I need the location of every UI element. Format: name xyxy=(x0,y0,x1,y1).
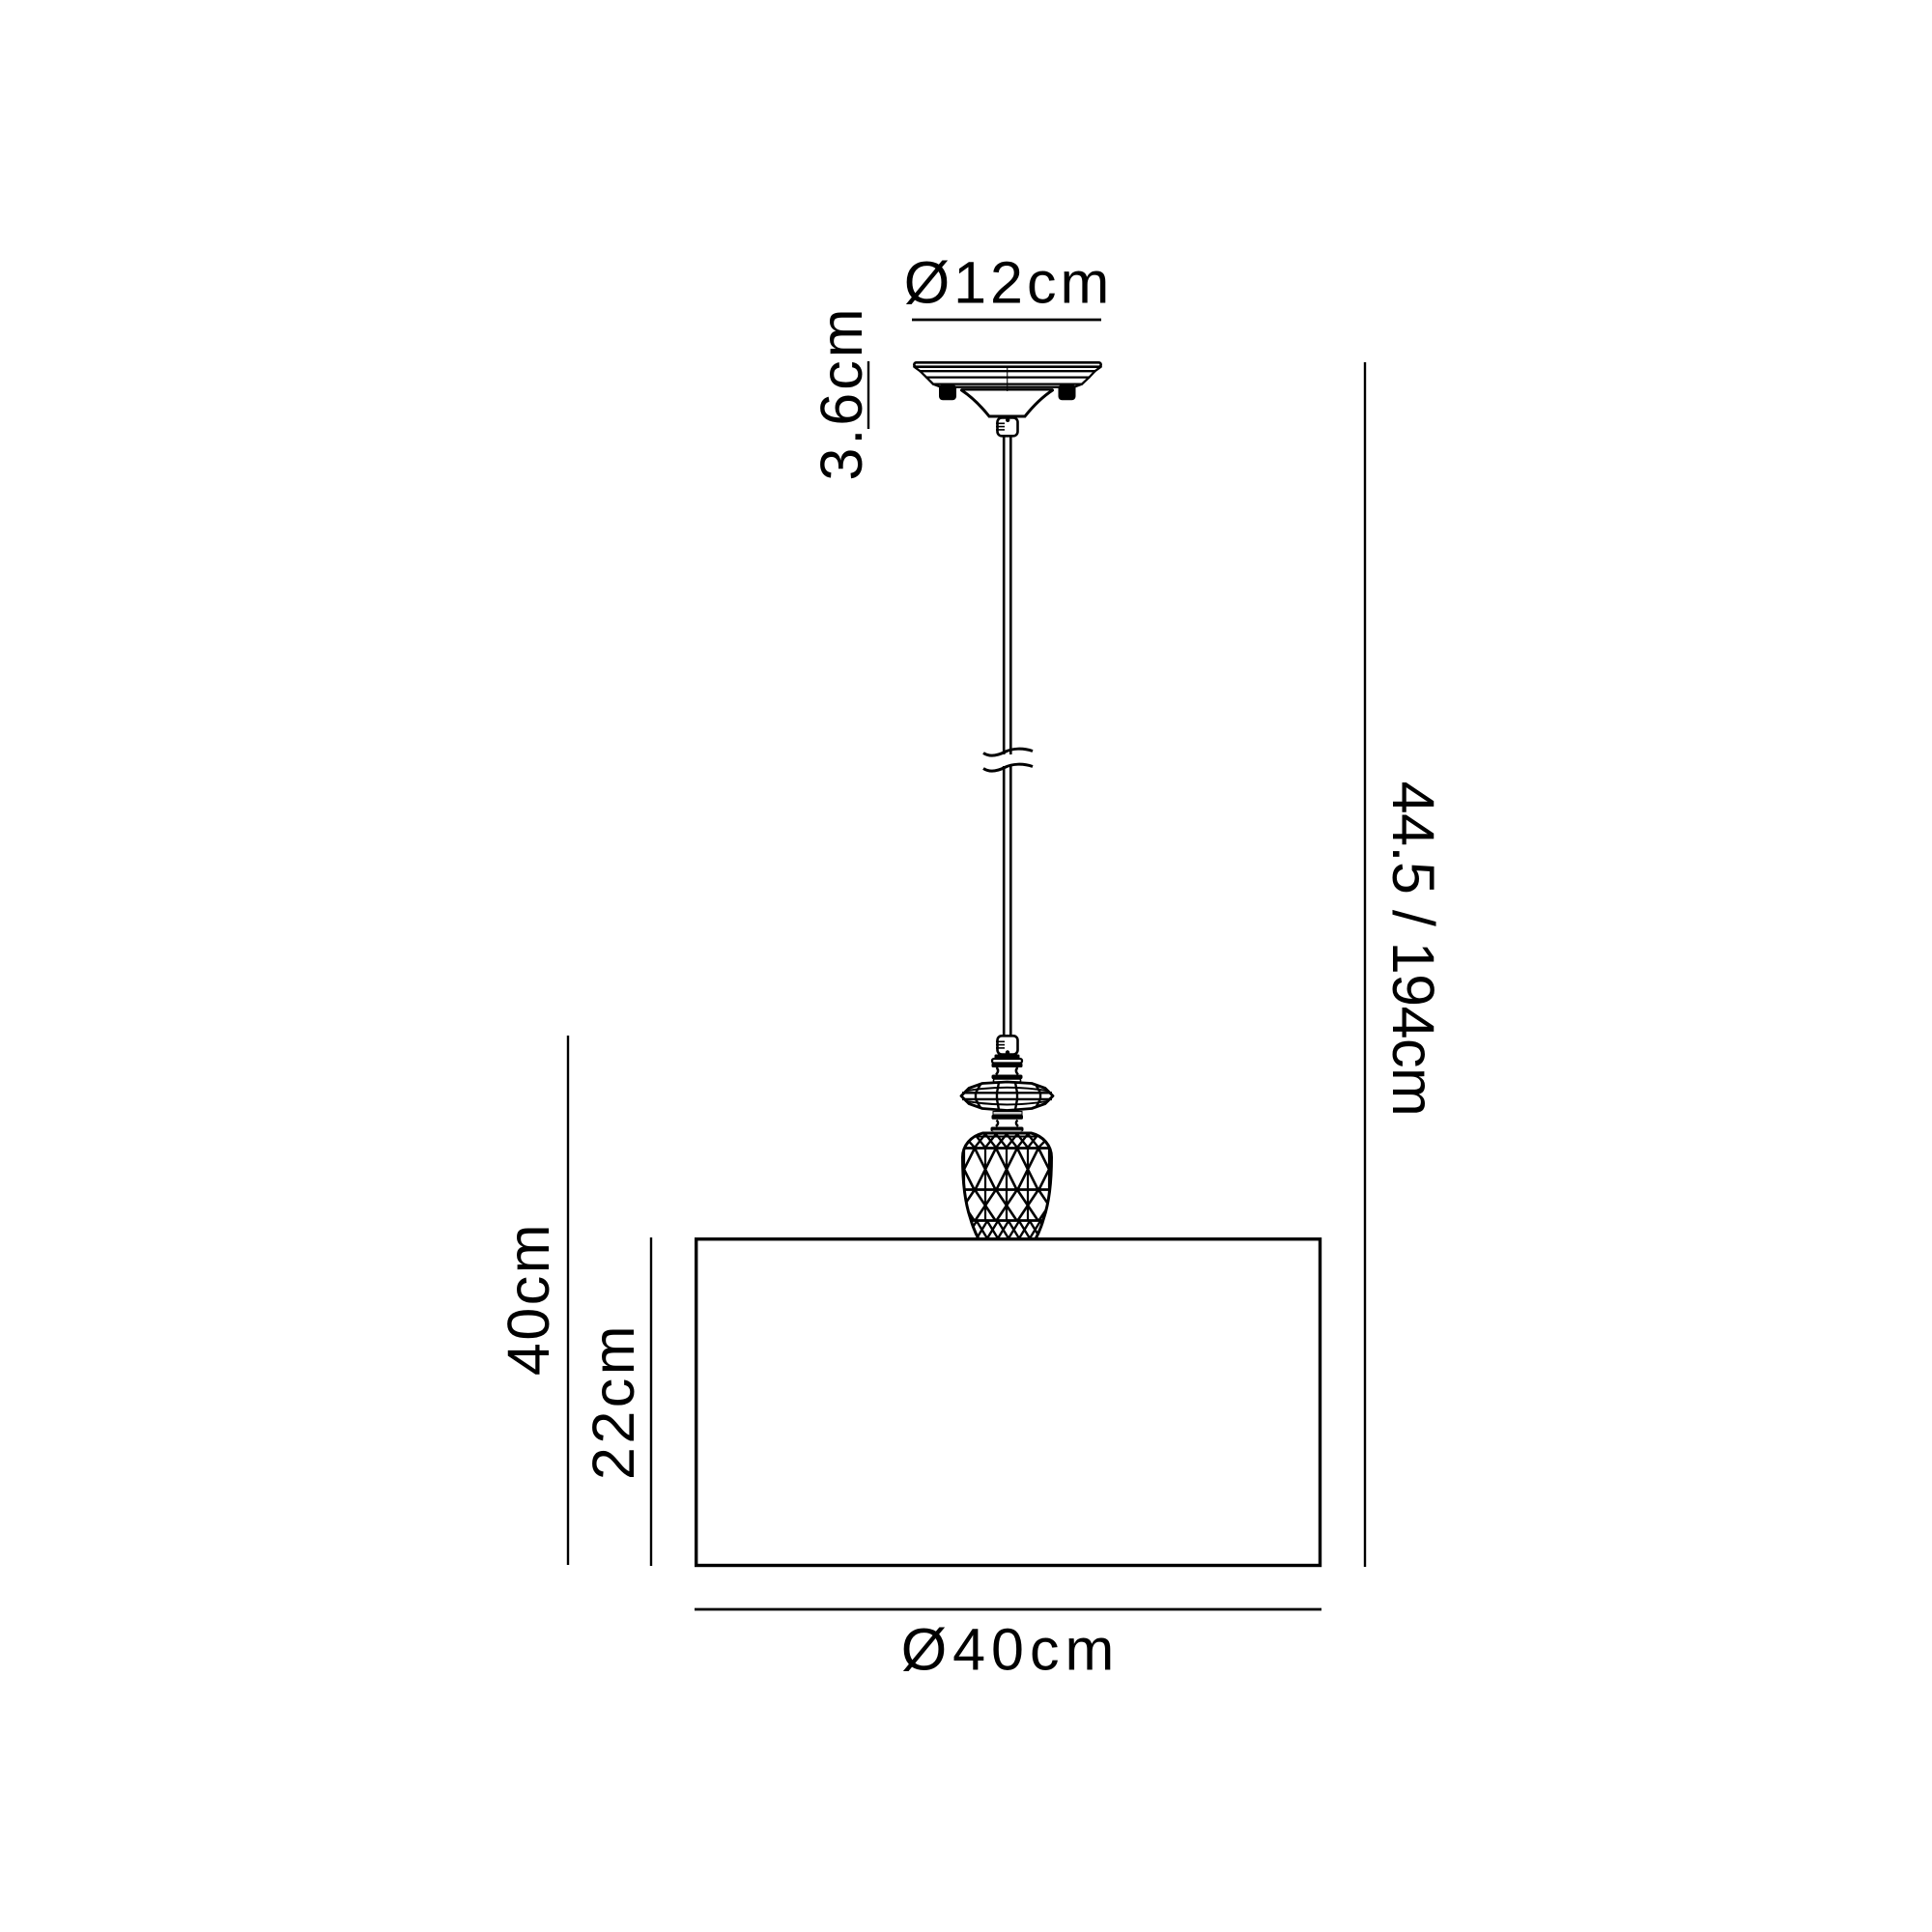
svg-text:Ø12cm: Ø12cm xyxy=(904,250,1114,316)
svg-text:Ø40cm: Ø40cm xyxy=(901,1617,1121,1683)
svg-text:22cm: 22cm xyxy=(581,1322,646,1480)
svg-text:44.5 / 194cm: 44.5 / 194cm xyxy=(1380,781,1446,1117)
svg-text:40cm: 40cm xyxy=(496,1222,561,1376)
svg-text:3.6cm: 3.6cm xyxy=(809,305,874,480)
